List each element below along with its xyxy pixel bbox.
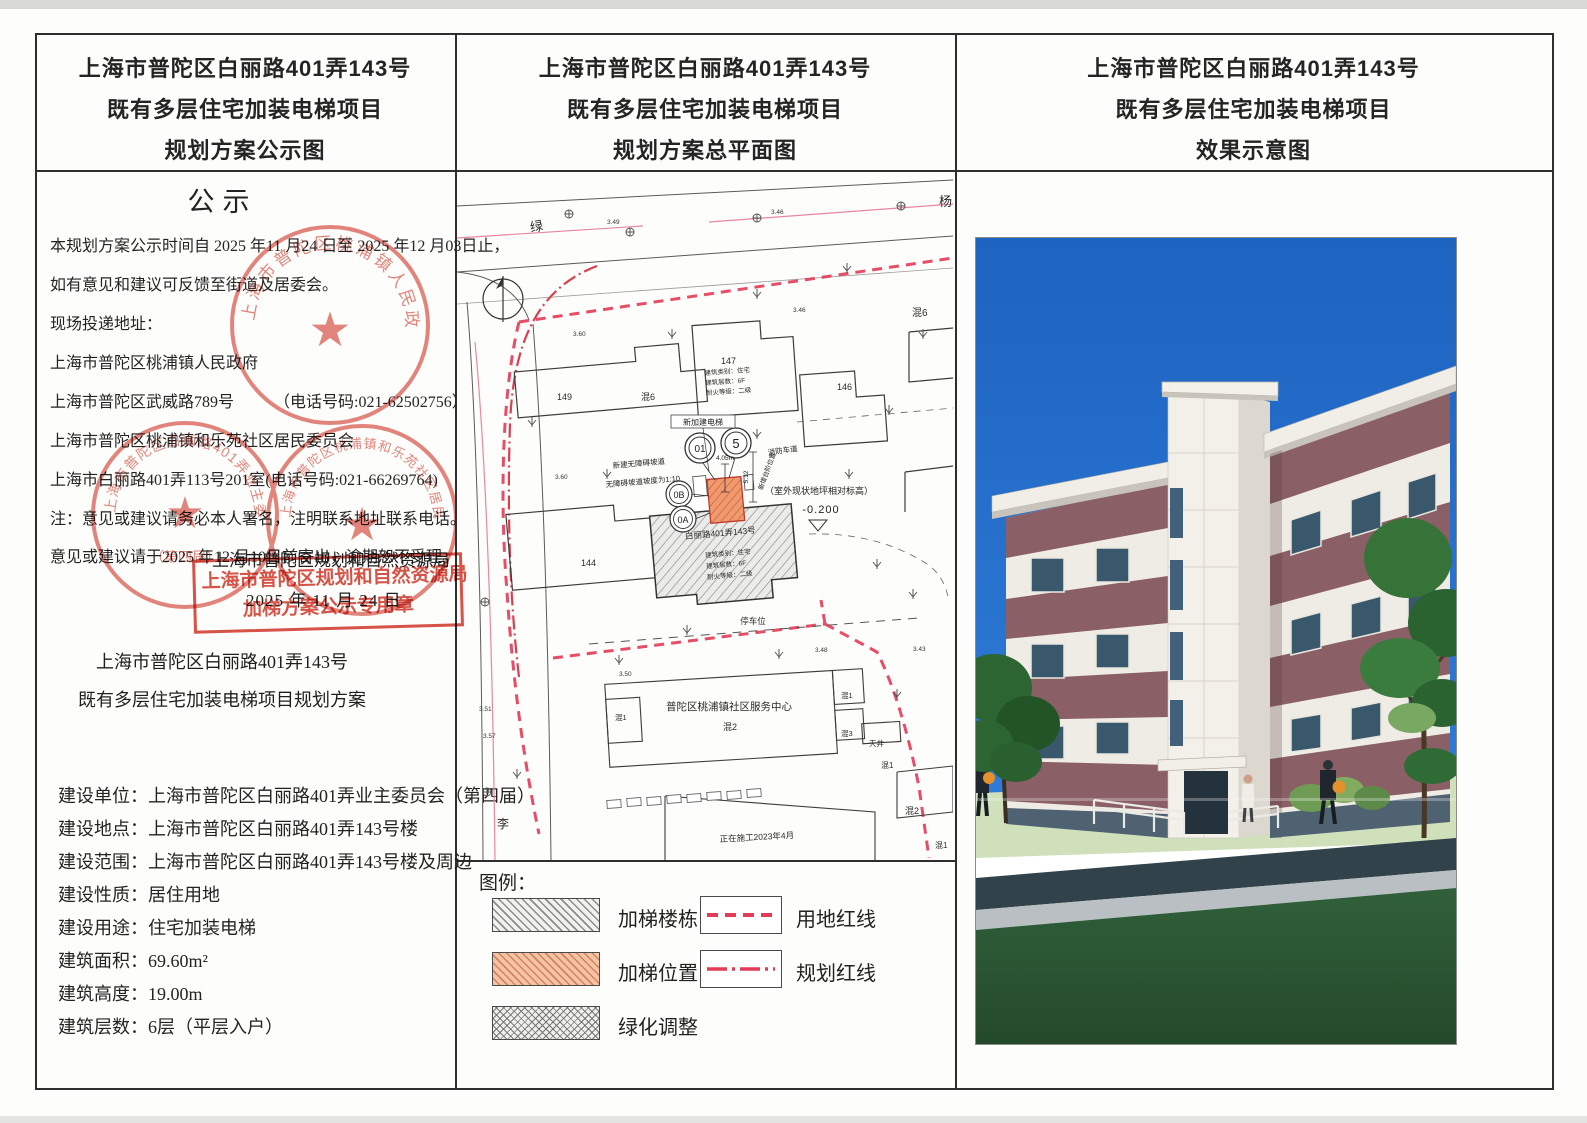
svg-text:3.49: 3.49 (607, 219, 620, 226)
rendering-svg (976, 238, 1456, 1044)
steps-label: 新增台阶位置 (756, 451, 778, 491)
parking-label: 停车位 (740, 616, 766, 626)
legend-label-green: 绿化调整 (618, 1011, 698, 1040)
detail-label: 建设范围： (58, 852, 148, 872)
notice-line: 注：意见或建议请务必本人署名，注明联系地址联系电话。 (50, 505, 452, 529)
building-144 (506, 502, 660, 591)
label-hun6b: 混6 (912, 307, 928, 319)
dim-4-05: 4.05m (716, 455, 734, 462)
svg-text:3.43: 3.43 (913, 646, 926, 653)
scanned-notice-page: 上海市普陀区白丽路401弄143号 既有多层住宅加装电梯项目 规划方案公示图 公… (0, 0, 1587, 1123)
right-title-line3: 效果示意图 (955, 130, 1552, 171)
label-tianjing: 天井 (869, 738, 884, 748)
scan-edge (0, 1116, 1587, 1123)
svg-text:3.50: 3.50 (619, 671, 632, 678)
notice-line: 如有意见和建议可反馈至街道及居委会。 (50, 271, 452, 295)
right-panel-title: 上海市普陀区白丽路401弄143号 既有多层住宅加装电梯项目 效果示意图 (955, 48, 1552, 171)
legend-swatch-lift (492, 952, 600, 986)
planning-redline (509, 266, 597, 677)
label-hun1d: 混1 (935, 841, 948, 850)
svg-text:01: 01 (694, 444, 706, 455)
notice-line: 现场投递地址： (50, 310, 452, 334)
building-rendering (975, 237, 1457, 1045)
ground-value: -0.200 (802, 504, 839, 516)
detail-label: 建筑面积： (58, 951, 148, 971)
right-title-line1: 上海市普陀区白丽路401弄143号 (955, 48, 1552, 89)
project-title-line2: 既有多层住宅加装电梯项目规划方案 (78, 686, 366, 712)
legend-separator (455, 860, 957, 862)
building-fragment (909, 328, 953, 382)
left-panel-title: 上海市普陀区白丽路401弄143号 既有多层住宅加装电梯项目 规划方案公示图 (35, 48, 455, 171)
parked-cars (607, 789, 762, 809)
svg-text:3.46: 3.46 (793, 307, 806, 314)
middle-title-line3: 规划方案总平面图 (455, 130, 955, 171)
road-name-yang: 杨 (939, 194, 952, 209)
panel-divider-right (955, 33, 957, 1088)
detail-value: 居住用地 (148, 885, 220, 905)
svg-text:3.46: 3.46 (771, 209, 784, 216)
left-title-line2: 既有多层住宅加装电梯项目 (35, 89, 455, 130)
new-lift-footprint (707, 477, 745, 524)
detail-row: 建筑层数：6层（平层入户） (58, 1013, 283, 1039)
building-146 (800, 369, 888, 447)
notice-line: 上海市普陀区武威路789号 （电话号码:021-62502756） (50, 388, 452, 412)
svg-text:3.57: 3.57 (483, 733, 496, 740)
notice-line: 上海市普陀区桃浦镇和乐苑社区居民委员会 (50, 427, 452, 451)
project-title-line1: 上海市普陀区白丽路401弄143号 (96, 648, 348, 674)
legend-label-building: 加梯楼栋 (618, 903, 698, 932)
level-symbol (809, 520, 827, 531)
detail-label: 建筑高度： (58, 984, 148, 1004)
detail-row: 建设地点：上海市普陀区白丽路401弄143号楼 (58, 815, 418, 841)
detail-label: 建设用途： (58, 918, 148, 938)
detail-label: 建设单位： (58, 786, 148, 806)
legend-swatch-green (492, 1006, 600, 1040)
label-hun2b: 混2 (905, 806, 919, 816)
legend-swatch-building (492, 898, 600, 932)
notice-line: 上海市普陀区桃浦镇人民政府 (50, 349, 452, 373)
scan-crease (976, 798, 1456, 801)
notice-title: 公示 (35, 180, 410, 219)
service-center-name: 普陀区桃浦镇社区服务中心 (666, 700, 792, 713)
middle-title-line1: 上海市普陀区白丽路401弄143号 (455, 48, 955, 89)
site-plan: 01 5 0B 0A 新加建电梯 新建无障碍坡道 无障碍坡道坡度为1:10 (457, 172, 953, 860)
ground-note: （室外现状地坪相对标高） (765, 485, 873, 496)
legend-swatch-land-redline (700, 896, 782, 934)
label-hun1c: 混1 (881, 761, 894, 770)
notice-line: 上海市白丽路401弄113号201室(电话号码:021-66269764) (50, 466, 452, 490)
spot-elevations: 3.49 3.46 3.46 3.60 3.60 3.50 3.51 3.48 … (479, 209, 926, 740)
detail-value: 上海市普陀区白丽路401弄143号楼 (148, 819, 418, 839)
label-147: 147 (721, 356, 736, 366)
detail-value: 住宅加装电梯 (148, 918, 256, 938)
label-hun2a: 混2 (723, 722, 737, 732)
middle-panel-title: 上海市普陀区白丽路401弄143号 既有多层住宅加装电梯项目 规划方案总平面图 (455, 48, 955, 171)
legend-swatch-planning-redline (700, 950, 782, 988)
label-144: 144 (581, 558, 596, 568)
detail-value: 69.60m² (148, 951, 208, 971)
detail-label: 建筑层数： (58, 1017, 148, 1037)
svg-text:3.60: 3.60 (555, 474, 568, 481)
rect-stamp: 上海市普陀区规划和自然资源局 加梯方案公示专用章 (192, 552, 464, 634)
svg-text:0B: 0B (673, 490, 684, 500)
label-hun6a: 混6 (641, 392, 655, 402)
scan-edge (0, 0, 1587, 9)
left-title-line3: 规划方案公示图 (35, 130, 455, 171)
callout-5: 5 (721, 428, 751, 478)
ramp-label: 新建无障碍坡道 (612, 456, 666, 471)
label-146: 146 (837, 382, 852, 392)
detail-row: 建设性质：居住用地 (58, 881, 220, 907)
dim-5-12: 5.12 (743, 470, 750, 483)
detail-label: 建设性质： (58, 885, 148, 905)
callout-01: 01 (685, 433, 715, 480)
detail-value: 19.00m (148, 984, 203, 1004)
svg-text:3.60: 3.60 (573, 331, 586, 338)
label-hun3: 混3 (841, 729, 853, 738)
legend-title: 图例： (479, 868, 536, 895)
svg-text:0A: 0A (677, 515, 688, 525)
road-name-lu: 绿 (529, 218, 544, 235)
left-title-line1: 上海市普陀区白丽路401弄143号 (35, 48, 455, 89)
svg-text:5: 5 (732, 436, 739, 451)
svg-text:3.48: 3.48 (815, 647, 828, 654)
notice-line: 本规划方案公示时间自 2025 年11 月24 日至 2025 年12 月03日… (50, 232, 452, 256)
b147-info3: 耐火等级：二级 (706, 385, 753, 397)
detail-row: 建设用途：住宅加装电梯 (58, 914, 256, 940)
detail-label: 建设地点： (58, 819, 148, 839)
legend-label-land-redline: 用地红线 (796, 903, 876, 932)
b147-info1: 建筑类别：住宅 (704, 365, 751, 377)
svg-text:3.51: 3.51 (479, 706, 492, 713)
detail-row: 建筑高度：19.00m (58, 980, 203, 1006)
detail-row: 建筑面积：69.60m² (58, 947, 208, 973)
building-149 (513, 342, 708, 418)
legend-label-planning-redline: 规划红线 (796, 957, 876, 986)
detail-value: 上海市普陀区白丽路401弄143号楼及周边 (148, 852, 472, 872)
b147-info2: 建筑层数：6F (705, 375, 746, 387)
right-title-line2: 既有多层住宅加装电梯项目 (955, 89, 1552, 130)
legend-label-lift: 加梯位置 (618, 957, 698, 986)
middle-title-line2: 既有多层住宅加装电梯项目 (455, 89, 955, 130)
label-hun1a: 混1 (615, 713, 627, 722)
construction-label: 正在施工2023年4月 (719, 830, 794, 844)
building-fragment (905, 466, 953, 512)
label-hun1b: 混1 (841, 691, 853, 700)
label-149: 149 (557, 392, 572, 402)
road-name-li: 李 (497, 816, 509, 831)
detail-row: 建设范围：上海市普陀区白丽路401弄143号楼及周边 (58, 848, 472, 874)
service-center (605, 667, 902, 768)
detail-value: 6层（平层入户） (148, 1017, 283, 1037)
entry-step (693, 476, 708, 497)
new-lift-label: 新加建电梯 (683, 417, 723, 427)
